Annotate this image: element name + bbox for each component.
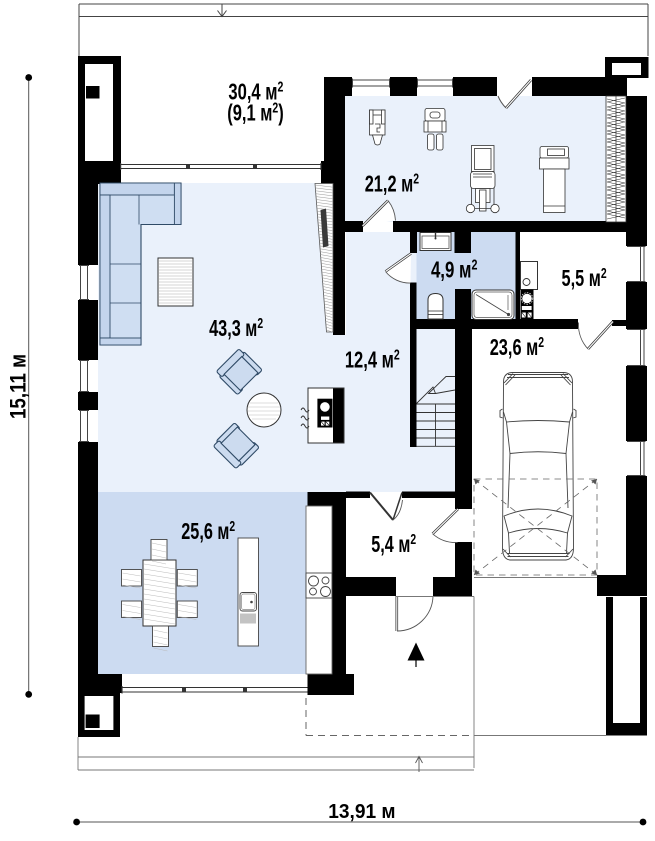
svg-text:15,11 м: 15,11 м [6, 354, 31, 419]
svg-text:21,2 м2: 21,2 м2 [365, 171, 419, 197]
svg-text:23,6 м2: 23,6 м2 [490, 334, 544, 360]
svg-text:13,91 м: 13,91 м [328, 801, 395, 823]
svg-text:12,4 м2: 12,4 м2 [345, 346, 400, 372]
svg-text:43,3 м2: 43,3 м2 [209, 315, 263, 341]
svg-text:25,6 м2: 25,6 м2 [181, 518, 235, 544]
svg-text:5,5 м2: 5,5 м2 [562, 265, 607, 291]
svg-text:5,4 м2: 5,4 м2 [371, 531, 416, 557]
svg-text:4,9 м2: 4,9 м2 [431, 256, 478, 282]
